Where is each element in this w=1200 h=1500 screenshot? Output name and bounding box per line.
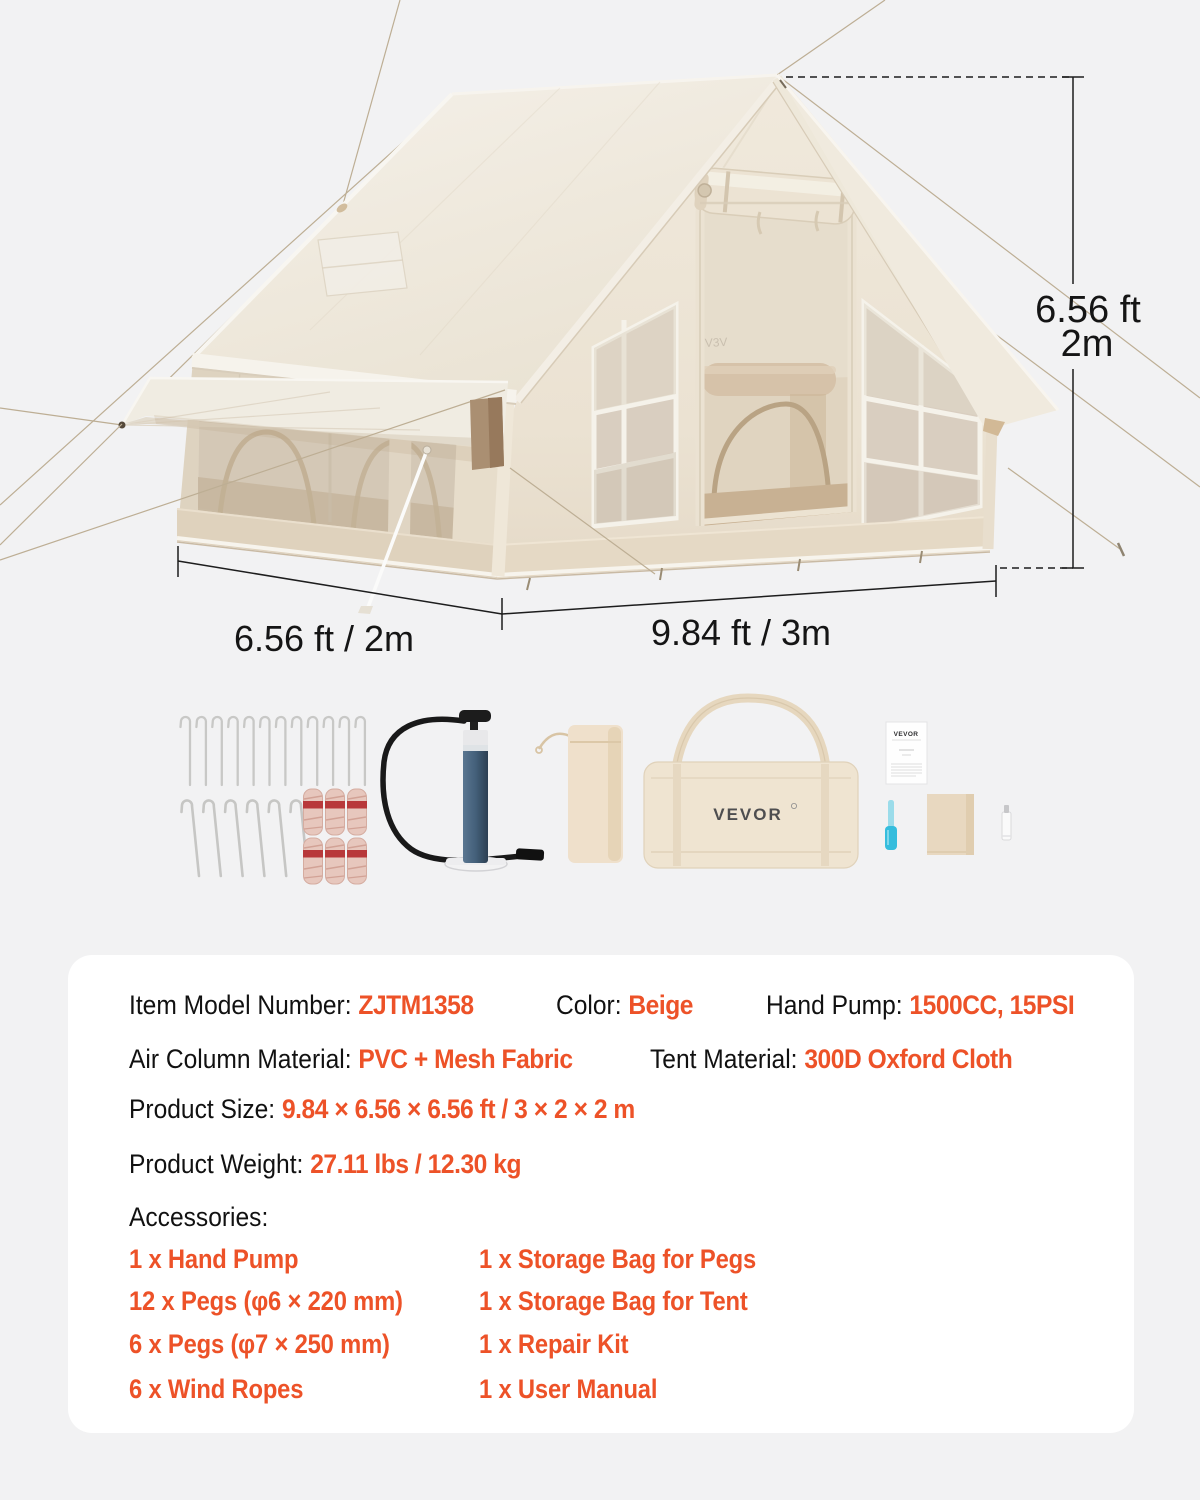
- svg-text:V3V: V3V: [704, 335, 727, 350]
- svg-text:9.84 ft / 3m: 9.84 ft / 3m: [651, 612, 831, 653]
- svg-text:2m: 2m: [1061, 323, 1114, 365]
- svg-text:6.56 ft / 2m: 6.56 ft / 2m: [234, 618, 414, 659]
- svg-text:VEVOR: VEVOR: [894, 731, 919, 738]
- svg-text:VEVOR: VEVOR: [713, 805, 783, 824]
